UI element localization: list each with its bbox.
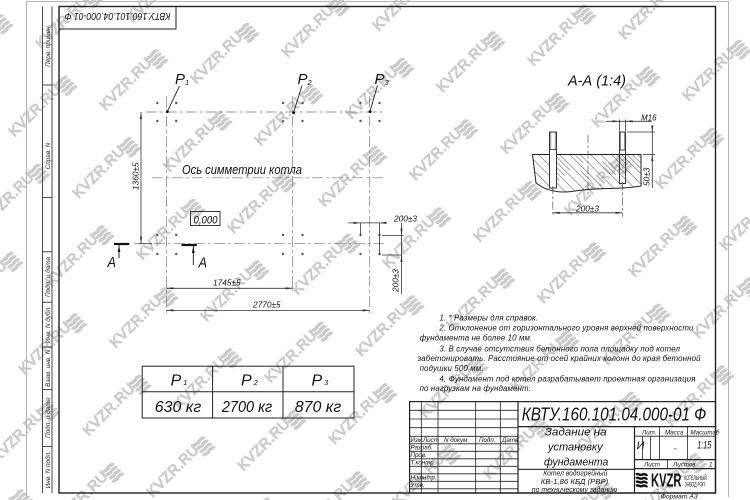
svg-text:по нагрузкам на фундамент.: по нагрузкам на фундамент.: [420, 384, 531, 393]
svg-text:Дата: Дата: [501, 437, 519, 444]
svg-text:Изм.: Изм.: [411, 437, 424, 444]
svg-text:М16: М16: [641, 114, 657, 123]
svg-text:А-А (1:4): А-А (1:4): [567, 74, 626, 90]
svg-text:подушки 500 мм.: подушки 500 мм.: [420, 364, 484, 373]
svg-text:А: А: [198, 255, 207, 272]
svg-text:Задание на: Задание на: [545, 427, 607, 439]
svg-text:по техническому заданию: по техническому заданию: [532, 486, 618, 494]
svg-text:Инв. N подл.: Инв. N подл.: [44, 451, 52, 488]
svg-text:Подп.: Подп.: [479, 437, 495, 444]
svg-text:N докум.: N докум.: [444, 437, 469, 444]
svg-text:1360±5: 1360±5: [131, 162, 141, 190]
svg-text:Масштаб: Масштаб: [691, 429, 720, 436]
svg-text:1: 1: [709, 461, 712, 468]
svg-text:Котел водогрейный: Котел водогрейный: [543, 470, 607, 478]
svg-text:Подп. и дата: Подп. и дата: [44, 257, 52, 297]
svg-text:KVZR: KVZR: [651, 470, 682, 491]
svg-text:Т.контр.: Т.контр.: [411, 460, 436, 467]
svg-text:Формат А3: Формат А3: [661, 493, 698, 500]
svg-text:P3: P3: [312, 373, 330, 390]
svg-text:P1: P1: [175, 71, 189, 88]
svg-text:Листов: Листов: [672, 461, 696, 468]
svg-text:КВТУ.160.101.04.000-01 Ф: КВТУ.160.101.04.000-01 Ф: [522, 403, 707, 424]
svg-text:200±3: 200±3: [391, 269, 401, 293]
svg-text:2770±5: 2770±5: [252, 300, 281, 310]
svg-text:Лист: Лист: [643, 461, 660, 468]
svg-text:забетонировать. Расстояние от: забетонировать. Расстояние от осей крайн…: [417, 354, 701, 363]
svg-text:4. Фундамент под котел разраба: 4. Фундамент под котел разрабатывает про…: [439, 374, 696, 383]
svg-text:А: А: [107, 254, 116, 271]
svg-text:-: -: [674, 444, 677, 453]
svg-text:50±3: 50±3: [642, 167, 652, 186]
svg-text:200±3: 200±3: [575, 203, 599, 213]
svg-text:И: И: [637, 440, 645, 452]
svg-text:Н.контр.: Н.контр.: [411, 475, 437, 482]
svg-text:P1: P1: [171, 373, 188, 390]
svg-text:Утв.: Утв.: [410, 482, 425, 489]
svg-text:Лит.: Лит.: [641, 429, 657, 436]
svg-text:Масса: Масса: [665, 429, 684, 436]
svg-text:Перв. примен.: Перв. примен.: [45, 24, 52, 66]
svg-text:1:15: 1:15: [697, 440, 712, 452]
svg-text:Взам. инв. N: Взам. инв. N: [45, 349, 52, 387]
svg-text:Лист: Лист: [422, 437, 439, 444]
svg-text:КВТУ.160.101.04.000-01 Ф: КВТУ.160.101.04.000-01 Ф: [65, 10, 171, 22]
svg-text:КВ-1,86 КБД (РВР): КВ-1,86 КБД (РВР): [541, 479, 609, 486]
svg-text:Инв. N дубл.: Инв. N дубл.: [44, 306, 52, 343]
svg-text:фундамента: фундамента: [544, 456, 608, 468]
svg-text:0,000: 0,000: [194, 214, 219, 226]
svg-text:1745±5: 1745±5: [213, 278, 241, 288]
svg-text:ЗАВОД РЭП: ЗАВОД РЭП: [685, 481, 705, 488]
svg-text:870 кг: 870 кг: [295, 399, 342, 416]
svg-text:Ось симметрии котла: Ось симметрии котла: [182, 163, 302, 177]
svg-text:Подп. и дата: Подп. и дата: [44, 398, 52, 438]
svg-text:2. Отклонение от горизонтально: 2. Отклонение от горизонтального уровня …: [438, 323, 694, 332]
svg-text:Пров.: Пров.: [411, 452, 427, 459]
svg-text:3. В случае отсутствия бетонно: 3. В случае отсутствия бетонного пола пл…: [439, 344, 680, 353]
svg-text:установку: установку: [547, 442, 604, 454]
svg-text:фундамента не более 10 мм.: фундамента не более 10 мм.: [420, 333, 533, 342]
svg-text:2700 кг: 2700 кг: [221, 399, 273, 416]
svg-text:200±3: 200±3: [393, 213, 417, 223]
svg-text:P2: P2: [298, 71, 313, 88]
svg-text:Разраб.: Разраб.: [411, 445, 433, 452]
svg-text:Справ. N: Справ. N: [45, 142, 52, 169]
svg-text:1. * Размеры для справок.: 1. * Размеры для справок.: [439, 314, 538, 323]
svg-text:630 кг: 630 кг: [155, 399, 202, 416]
svg-text:P2: P2: [241, 373, 259, 390]
